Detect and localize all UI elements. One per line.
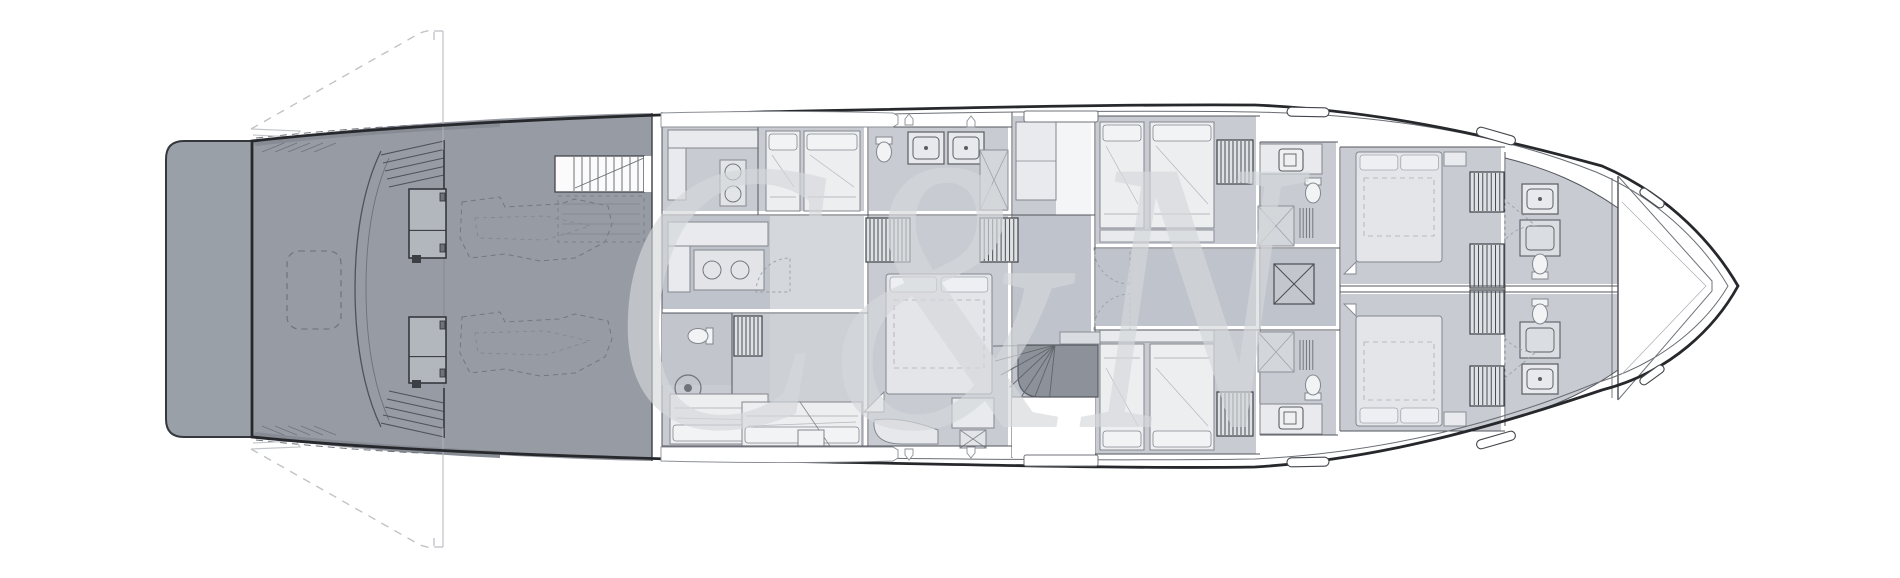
svg-text:C&N: C&N — [610, 80, 1312, 512]
